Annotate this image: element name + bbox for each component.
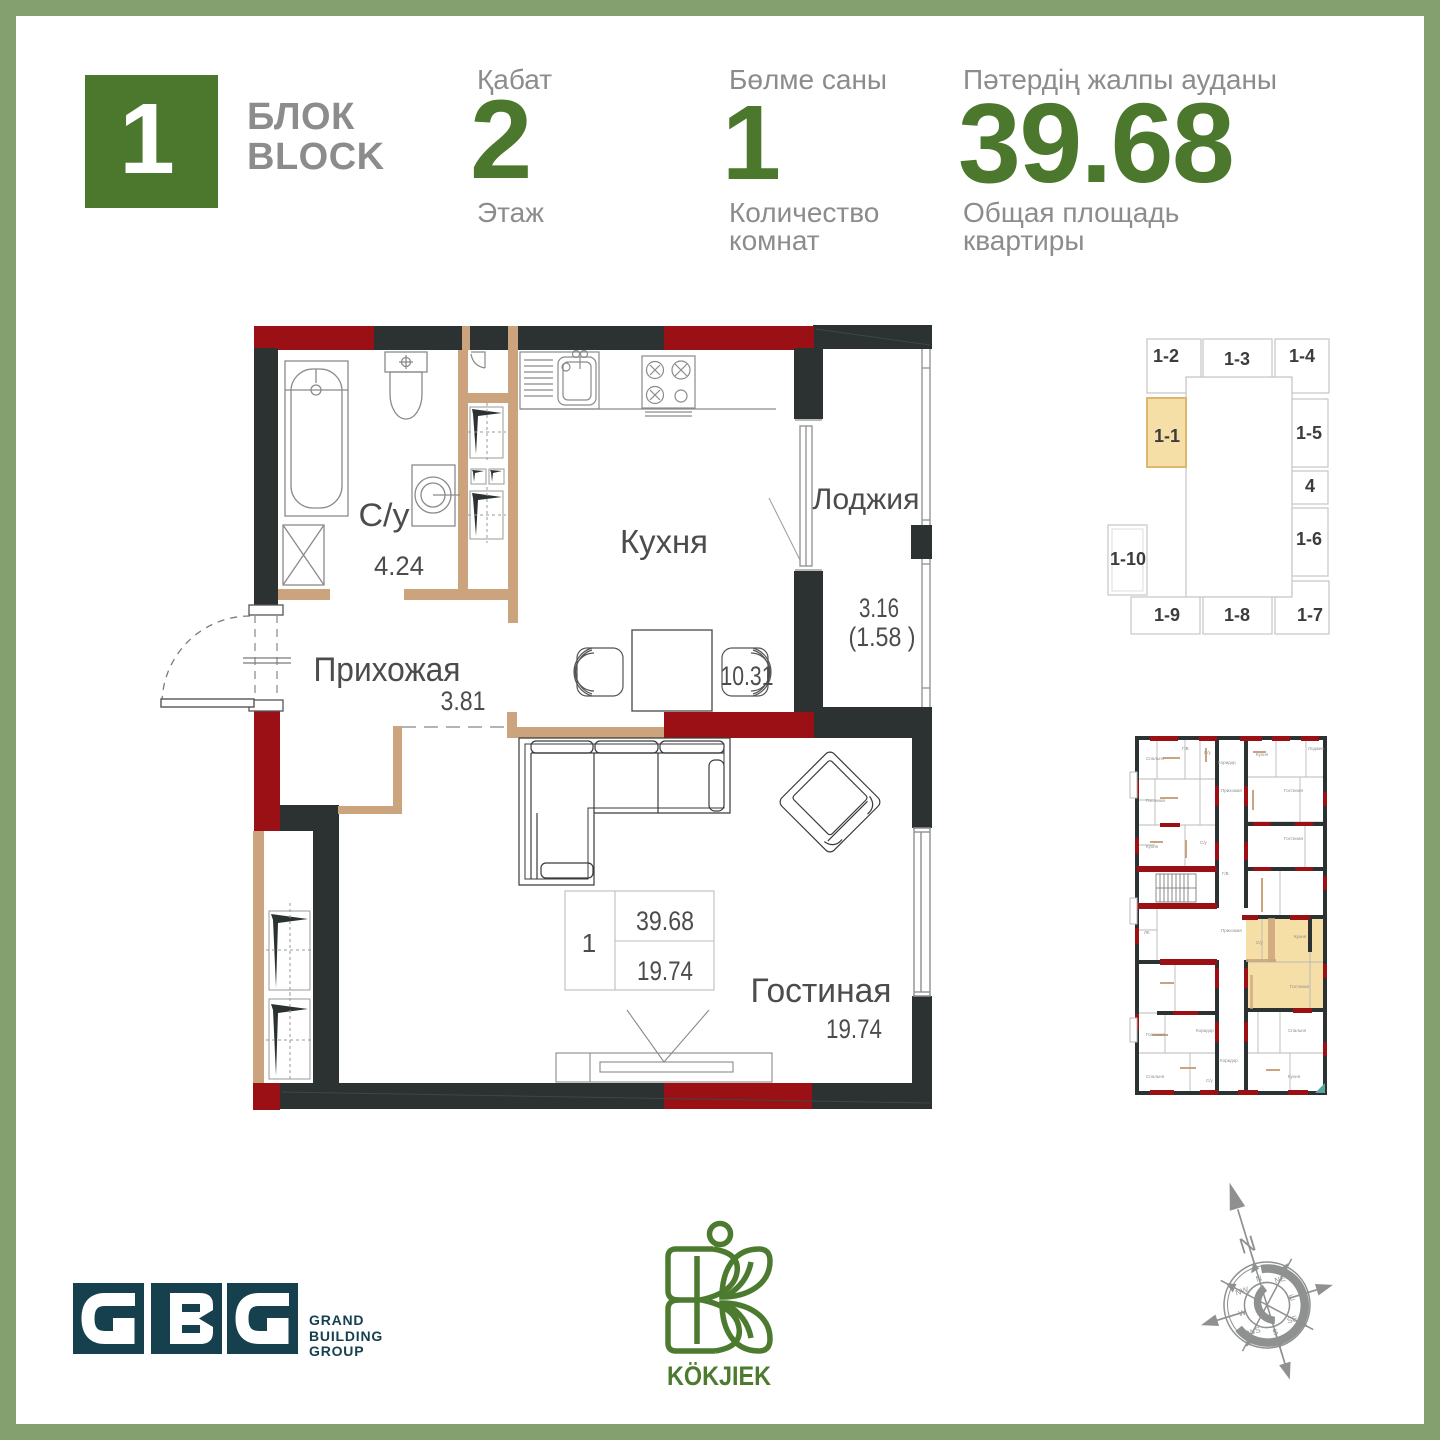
svg-text:1-1: 1-1 <box>1154 426 1180 446</box>
svg-text:1-3: 1-3 <box>1224 349 1250 369</box>
svg-text:3.16: 3.16 <box>859 593 899 623</box>
svg-text:Лоджия: Лоджия <box>813 483 920 516</box>
svg-text:Кухня: Кухня <box>620 523 708 560</box>
svg-text:Прихожая: Прихожая <box>1221 788 1242 793</box>
svg-text:1-6: 1-6 <box>1296 529 1322 549</box>
svg-text:1-9: 1-9 <box>1154 605 1180 625</box>
svg-text:С/у: С/у <box>1204 750 1212 755</box>
svg-text:KÖKJIEK: KÖKJIEK <box>667 1361 771 1391</box>
svg-text:Гостиная: Гостиная <box>1290 984 1309 989</box>
svg-text:Гостиная: Гостиная <box>1146 1032 1165 1037</box>
svg-text:NW: NW <box>1234 1285 1250 1298</box>
svg-text:С/у: С/у <box>359 497 410 533</box>
svg-text:1-7: 1-7 <box>1297 605 1323 625</box>
svg-text:Гостиная: Гостиная <box>1284 836 1303 841</box>
svg-text:Кухня: Кухня <box>1288 1074 1301 1079</box>
svg-text:N: N <box>1236 1230 1259 1259</box>
svg-text:4.24: 4.24 <box>374 551 424 581</box>
svg-text:Гостиная: Гостиная <box>1146 798 1165 803</box>
svg-text:1-10: 1-10 <box>1110 549 1146 569</box>
svg-text:Спальня: Спальня <box>1146 1074 1165 1079</box>
svg-text:1: 1 <box>582 928 596 958</box>
svg-text:1-4: 1-4 <box>1289 346 1315 366</box>
svg-text:Спальня: Спальня <box>1288 1028 1307 1033</box>
svg-text:W: W <box>1237 1308 1247 1319</box>
svg-text:19.74: 19.74 <box>637 956 693 986</box>
svg-text:19.74: 19.74 <box>826 1014 882 1044</box>
svg-text:Кухня: Кухня <box>1294 934 1307 939</box>
svg-text:Гостиная: Гостиная <box>1284 788 1303 793</box>
svg-text:Прихожая: Прихожая <box>314 651 461 689</box>
svg-text:С/у: С/у <box>1256 940 1264 945</box>
svg-text:N: N <box>1255 1273 1263 1283</box>
svg-text:1-8: 1-8 <box>1224 605 1250 625</box>
svg-text:E: E <box>1288 1293 1296 1303</box>
svg-text:1-5: 1-5 <box>1296 423 1322 443</box>
svg-text:BUILDING: BUILDING <box>309 1328 383 1344</box>
svg-text:1-2: 1-2 <box>1153 346 1179 366</box>
svg-text:Г/В: Г/В <box>1222 871 1229 876</box>
svg-text:(1.58 ): (1.58 ) <box>849 622 916 652</box>
svg-text:3.81: 3.81 <box>441 686 486 716</box>
svg-text:Гостиная: Гостиная <box>751 972 892 1010</box>
svg-text:10.31: 10.31 <box>721 661 774 691</box>
svg-text:Коридор: Коридор <box>1218 760 1236 765</box>
svg-text:С/у: С/у <box>1206 1078 1214 1083</box>
svg-text:Коридор: Коридор <box>1196 1028 1214 1033</box>
svg-text:Г/В: Г/В <box>1182 746 1189 751</box>
svg-text:39.68: 39.68 <box>636 906 694 936</box>
svg-text:Спальня: Спальня <box>1146 756 1165 761</box>
svg-text:Кухня: Кухня <box>1146 844 1159 849</box>
svg-text:Коридор: Коридор <box>1220 1058 1238 1063</box>
svg-text:ЛК: ЛК <box>1144 930 1150 935</box>
svg-text:4: 4 <box>1305 476 1315 496</box>
svg-text:GROUP: GROUP <box>309 1343 364 1359</box>
svg-text:С/у: С/у <box>1200 840 1208 845</box>
svg-text:Кухня: Кухня <box>1256 752 1269 757</box>
svg-text:Прихожая: Прихожая <box>1221 928 1242 933</box>
svg-text:GRAND: GRAND <box>309 1312 364 1328</box>
svg-text:WS: WS <box>1247 1325 1262 1337</box>
svg-text:S: S <box>1271 1327 1279 1337</box>
svg-text:Лоджия: Лоджия <box>1308 746 1325 751</box>
